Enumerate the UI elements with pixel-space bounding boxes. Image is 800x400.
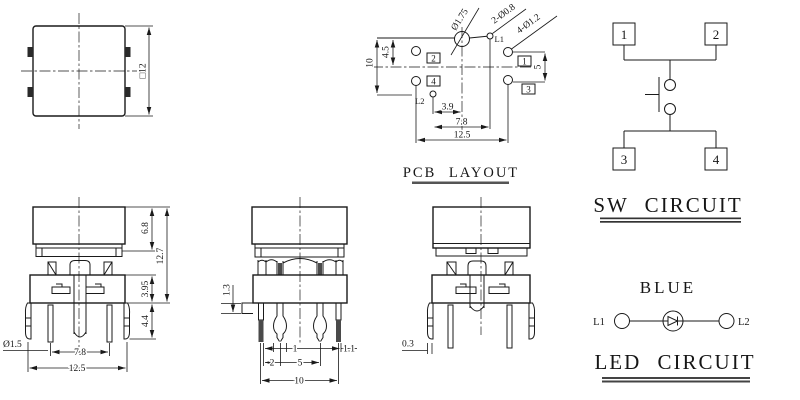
dim-body-height: 3.95 [141,280,151,297]
led-diode-symbol [663,311,683,331]
plunger-brackets [48,262,112,275]
dim-cap-height: 6.8 [141,222,151,234]
led-color-label: BLUE [640,278,696,297]
hole-l1 [487,33,493,39]
left-pin [448,305,453,348]
right-bent-pin [314,303,327,342]
led-holes-label: 2-Ø0.8 [490,2,518,26]
sw-title-underline-2 [600,221,741,223]
led-circuit-title: LED CIRCUIT [594,350,755,374]
pad-4-num: 4 [431,77,436,87]
l1-label: L1 [593,317,605,328]
top-edge [377,36,487,38]
sw-circuit: 1 2 3 4 SW CIRCUIT [593,23,742,223]
dim-standoff: 1.3 [223,284,233,296]
flange [433,244,530,257]
terminal-3: 3 [621,152,628,167]
sw-title-underline-1 [600,218,741,220]
housing-posts [258,259,343,276]
drawing-canvas: □12 Ø1.75 L1 2-Ø0.8 4-Ø1.2 2 4 1 3 L2 5 … [0,0,800,400]
dim-pin-length: 4.4 [141,315,151,327]
dim-overall: 12.5 [454,131,471,141]
sw-circuit-title: SW CIRCUIT [593,193,742,217]
dim-side: □12 [139,63,149,78]
standoff-step [242,303,253,314]
right-pin [507,305,512,348]
pushbutton-switch-symbol [645,77,676,115]
led-title-underline-2 [602,381,750,383]
dim-clip-offset: 0.3 [402,340,414,350]
back-view: 0.3 [402,197,535,354]
pcb-layout: Ø1.75 L1 2-Ø0.8 4-Ø1.2 2 4 1 3 L2 5 4.5 … [366,2,558,184]
pin-holes-label: 4-Ø1.2 [515,12,543,36]
pad-3-num: 3 [526,85,531,95]
dim-total-height: 12.7 [156,247,166,264]
dim-edge: 2 [270,359,275,369]
pad-1-num: 1 [522,57,527,67]
terminal-2: 2 [713,27,720,42]
plunger [468,261,486,275]
right-pin [107,305,112,342]
dim-overall: 10 [294,377,304,387]
dim-pin-dia: Ø1.5 [3,340,22,350]
technical-drawing-sheet: □12 Ø1.75 L1 2-Ø0.8 4-Ø1.2 2 4 1 3 L2 5 … [0,0,800,400]
pad-2-hole [412,47,421,56]
dim-pin-width: 1 [293,345,298,355]
base-body [30,275,125,303]
dim-height: 10 [366,58,376,68]
side-view: 1.3 1 1.1 2 5 10 [221,197,357,387]
terminal-1: 1 [621,27,628,42]
left-pin [48,305,53,342]
dim-clip-width: 1.1 [343,345,355,355]
pad-2-num: 2 [431,54,436,64]
dim-pitch: 5 [298,359,303,369]
led-title-underline-1 [602,377,750,379]
standoff-extensions [221,304,241,314]
left-clip [25,303,31,339]
dim-led-offset: 3.9 [442,103,454,113]
front-view: 6.8 3.95 4.4 12.7 Ø1.5 7.8 12.5 [3,197,170,374]
dim-pitch-v: 5 [534,64,544,69]
pad-3-hole [504,76,513,85]
l2-terminal [719,314,734,329]
left-clip [427,303,433,339]
led-lens-stem [74,275,86,337]
dim-overall: 12.5 [69,364,86,374]
pcb-title-underline [412,182,509,185]
l1-terminal [615,314,630,329]
dim-offset-top: 4.5 [382,46,392,58]
plunger-brackets [447,262,513,275]
centerlines [21,13,137,129]
led-circuit: BLUE L1 L2 LED CIRCUIT [593,278,755,383]
contacts [456,284,509,294]
cap [433,207,530,248]
pad-1-hole [504,48,513,57]
right-clip [124,303,130,339]
top-view: □12 [21,13,153,129]
pcb-layout-title: PCB LAYOUT [403,165,519,181]
terminal-4: 4 [713,152,720,167]
plunger [70,261,90,276]
l2-label: L2 [415,96,424,106]
dim-pitch: 7.8 [74,348,86,358]
right-clip [529,303,535,339]
left-bent-pin [274,303,287,342]
center-hole-label: Ø1.75 [450,7,471,32]
l2-label: L2 [738,317,750,328]
l1-label: L1 [495,34,504,44]
circuit-wires [624,45,716,148]
cap [252,207,347,244]
contacts [52,284,104,294]
dim-led-pitch: 7.8 [456,118,468,128]
hole-l2 [430,91,436,97]
flange [255,244,344,257]
pad-4-hole [412,77,421,86]
